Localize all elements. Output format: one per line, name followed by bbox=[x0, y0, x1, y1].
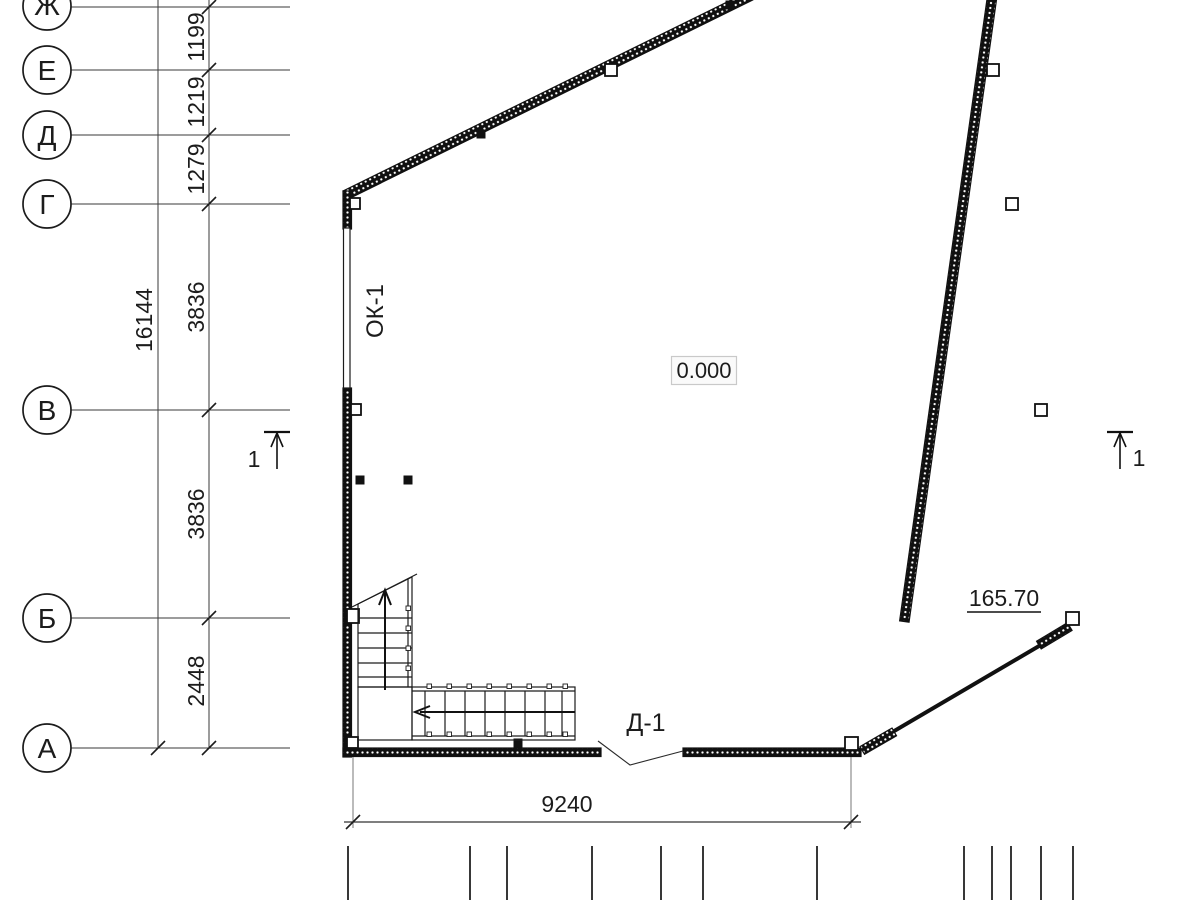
stair-posts bbox=[406, 606, 568, 737]
axis-label-zh: Ж bbox=[34, 0, 60, 21]
floor-plan-page: Ж Е Д Г В Б А 1199 1219 1279 3836 3836 2… bbox=[0, 0, 1200, 900]
section-marker-left: 1 bbox=[248, 432, 290, 472]
stair-landing bbox=[358, 687, 412, 740]
dim-value: 3836 bbox=[183, 488, 209, 539]
dim-value: 1219 bbox=[183, 76, 209, 127]
section-marker-right: 1 bbox=[1107, 432, 1145, 471]
level-right-value: 165.70 bbox=[969, 585, 1039, 611]
column bbox=[350, 198, 360, 209]
wall-niche bbox=[347, 609, 359, 623]
door-label: Д-1 bbox=[626, 709, 665, 737]
wall-diagonal bbox=[872, 629, 1068, 744]
dim-bottom-value: 9240 bbox=[541, 791, 592, 817]
column bbox=[605, 64, 617, 76]
section-number: 1 bbox=[248, 446, 261, 472]
column bbox=[987, 64, 999, 76]
column bbox=[726, 1, 734, 9]
bottom-dimension: 9240 bbox=[344, 757, 861, 829]
wall-right bbox=[900, 0, 998, 622]
axis-label-b: Б bbox=[38, 603, 56, 634]
staircase bbox=[352, 574, 575, 740]
dim-chain-values: 1199 1219 1279 3836 3836 2448 16144 bbox=[131, 12, 209, 706]
dim-total-left: 16144 bbox=[131, 288, 157, 352]
wall-niche bbox=[347, 737, 358, 748]
axis-label-v: В bbox=[38, 395, 57, 426]
axis-label-g: Г bbox=[39, 189, 54, 220]
wall-top bbox=[343, 0, 753, 200]
axis-label-d: Д bbox=[38, 120, 57, 151]
column bbox=[351, 404, 361, 415]
section-number: 1 bbox=[1133, 445, 1146, 471]
column bbox=[845, 737, 858, 750]
dim-value: 1279 bbox=[183, 143, 209, 194]
axis-bubbles: Ж Е Д Г В Б А bbox=[23, 0, 71, 772]
column bbox=[1066, 612, 1079, 625]
wall-bottom-right bbox=[683, 748, 861, 757]
wall-left-upper bbox=[343, 191, 352, 229]
dim-value: 1199 bbox=[183, 12, 209, 61]
axis-grid: Ж Е Д Г В Б А 1199 1219 1279 3836 3836 2… bbox=[23, 0, 290, 772]
dim-value: 2448 bbox=[183, 655, 209, 706]
column bbox=[404, 476, 412, 484]
column bbox=[1006, 198, 1018, 210]
wall-left-lower bbox=[343, 388, 352, 757]
stair-direction-arrow-left bbox=[415, 706, 575, 718]
floor-plan-svg: Ж Е Д Г В Б А 1199 1219 1279 3836 3836 2… bbox=[0, 0, 1200, 900]
column bbox=[356, 476, 364, 484]
window-label: ОК-1 bbox=[362, 284, 389, 338]
wall-diagonal-hatch-lower bbox=[860, 728, 897, 754]
stair-treads-lower bbox=[425, 691, 562, 736]
stair-direction-arrow-up bbox=[379, 590, 391, 690]
window-symbol bbox=[344, 228, 351, 388]
axis-label-a: А bbox=[38, 733, 57, 764]
axis-label-e: Е bbox=[38, 55, 57, 86]
column bbox=[477, 130, 485, 138]
lower-drawing-cut-lines bbox=[348, 846, 1073, 900]
wall-diagonal-hatch-upper bbox=[1037, 623, 1072, 649]
level-mark-value: 0.000 bbox=[676, 358, 731, 383]
column bbox=[1035, 404, 1047, 416]
wall-bottom-left bbox=[343, 748, 601, 757]
dim-value: 3836 bbox=[183, 281, 209, 332]
door-swing-line bbox=[598, 741, 683, 765]
